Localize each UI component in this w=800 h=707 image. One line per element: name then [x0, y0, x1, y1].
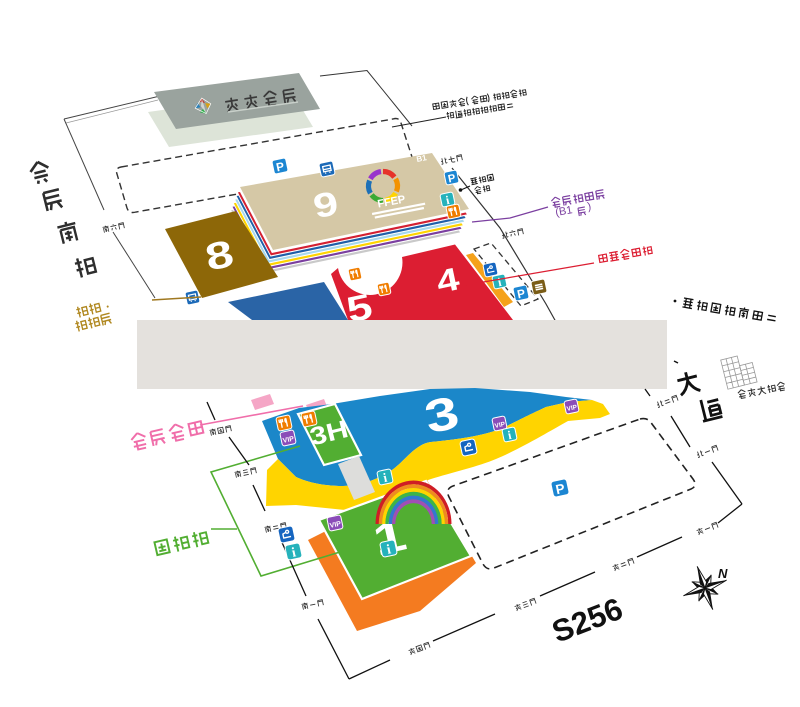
svg-text:N: N [718, 566, 728, 581]
